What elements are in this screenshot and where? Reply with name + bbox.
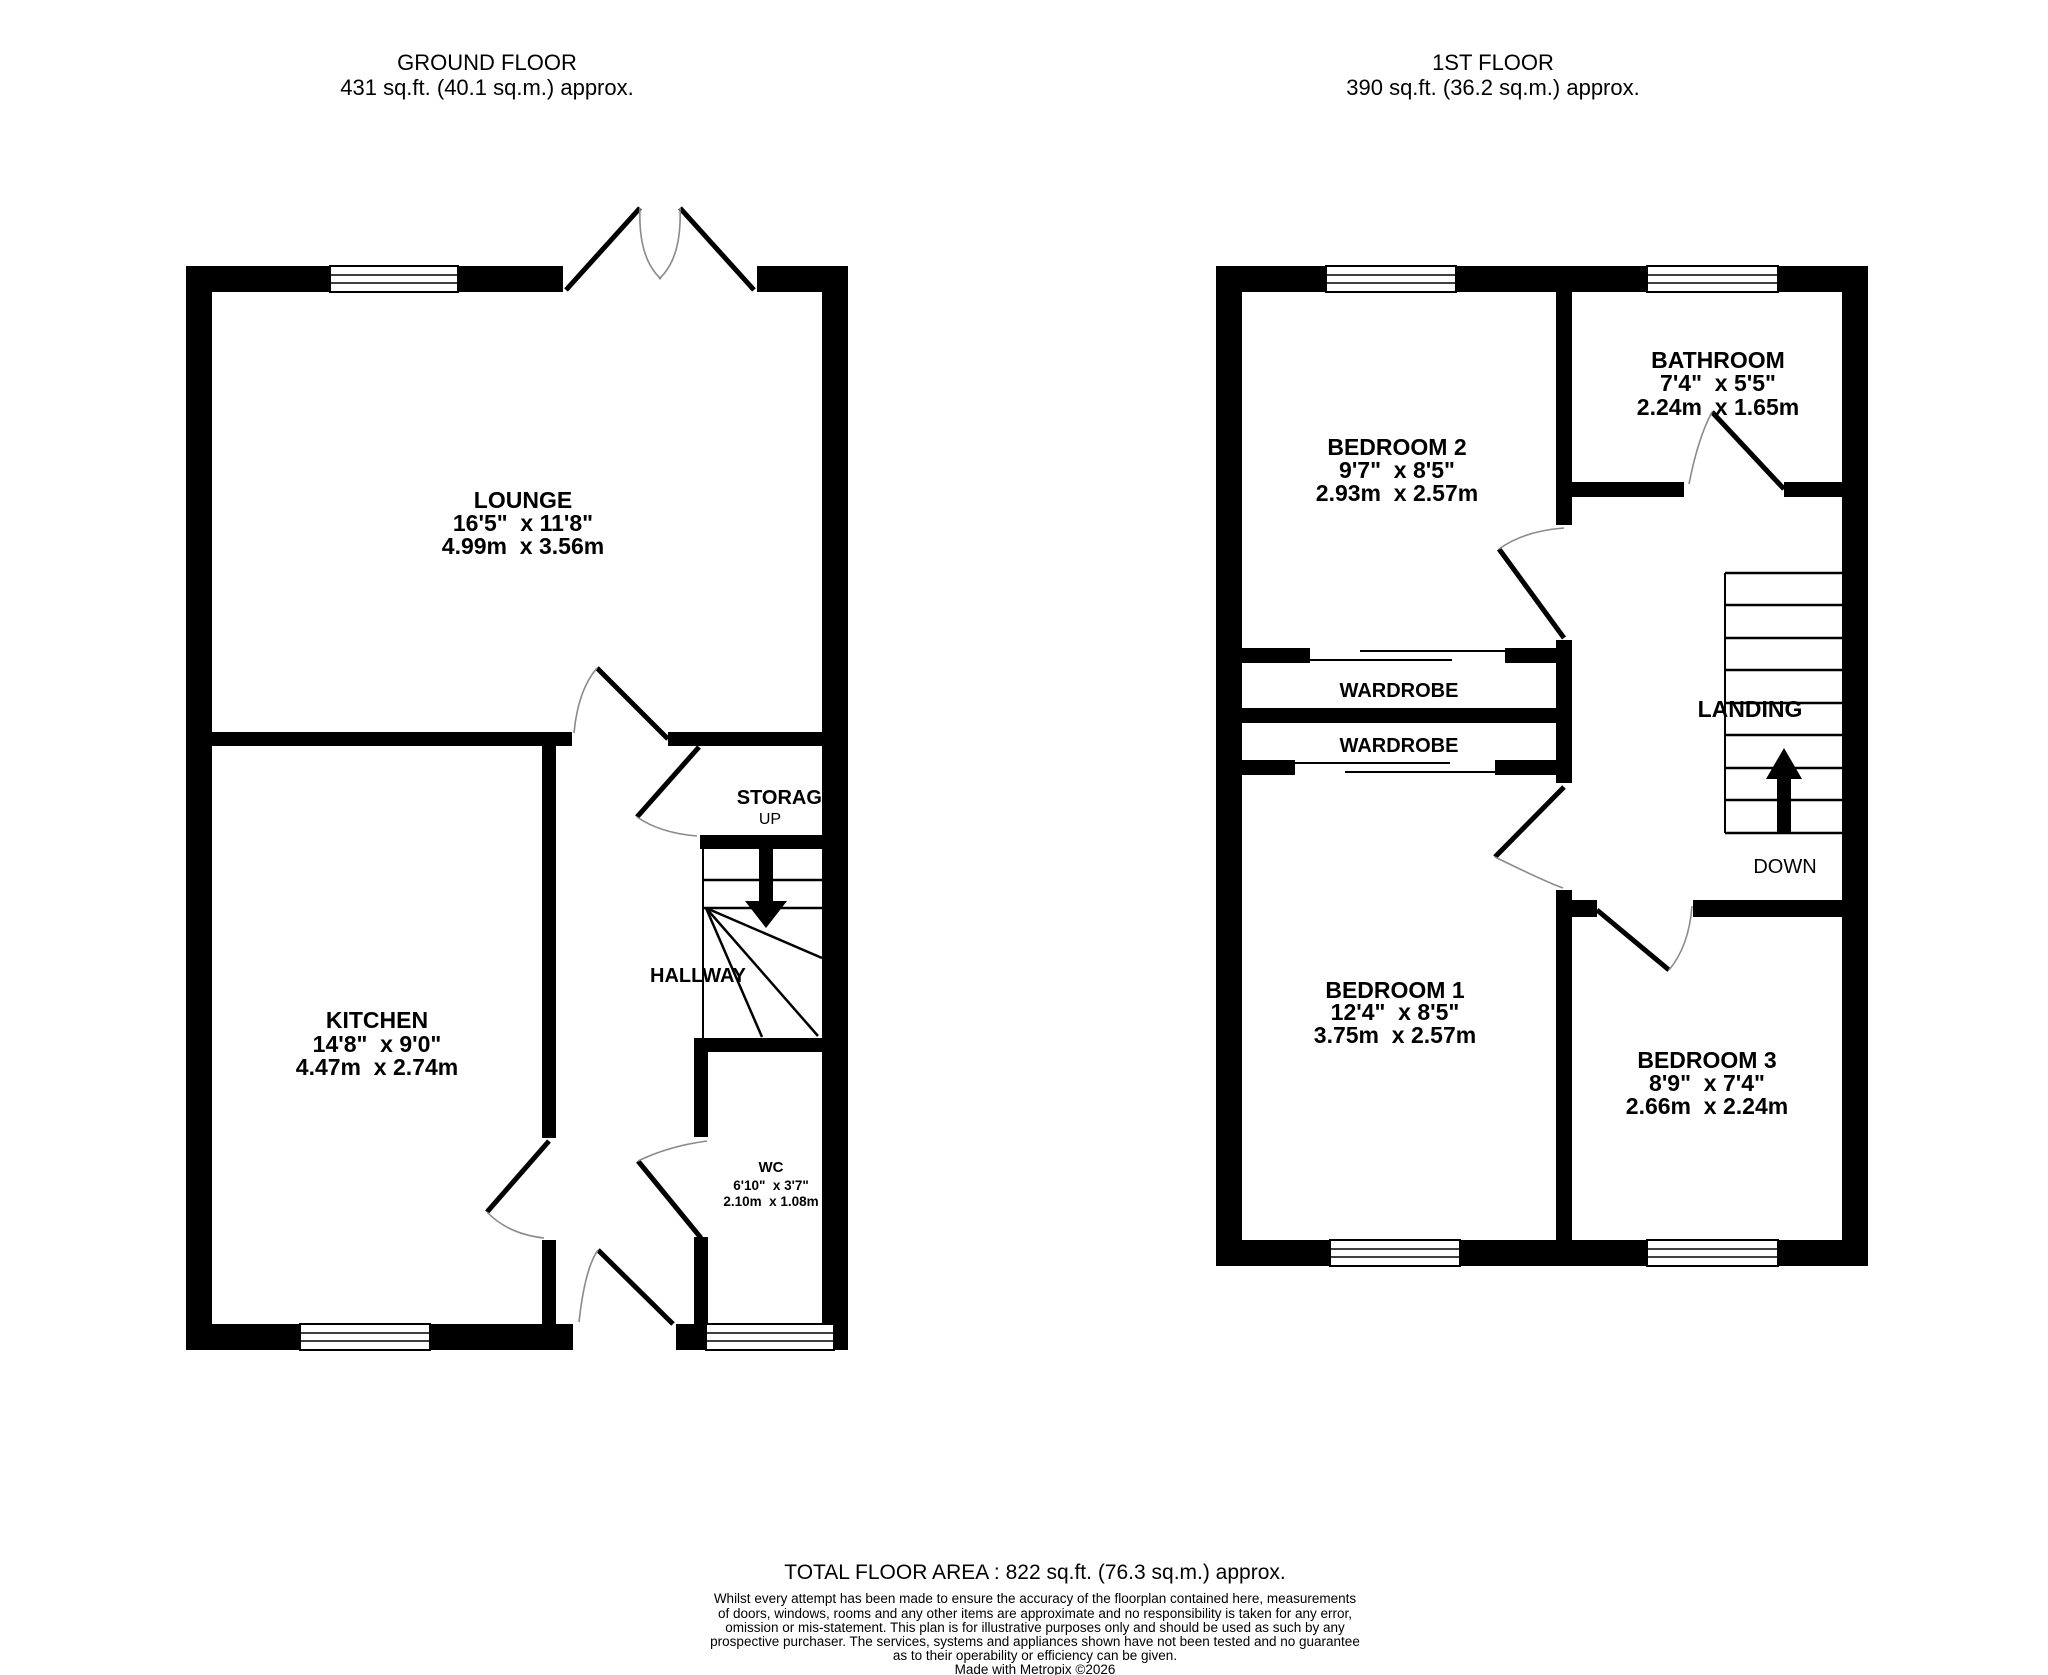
kitchen-metric: 4.47m x 2.74m <box>296 1054 458 1080</box>
wardrobe2-label: WARDROBE <box>1340 735 1459 757</box>
bathroom-imperial: 7'4" x 5'5" <box>1660 370 1776 396</box>
metropix-credit: Made with Metropix ©2026 <box>955 1662 1116 1675</box>
wc-imperial: 6'10" x 3'7" <box>733 1178 809 1193</box>
bedroom3-metric: 2.66m x 2.24m <box>1626 1093 1788 1119</box>
storage-label: STORAGE <box>737 787 836 809</box>
storage-door <box>637 747 699 836</box>
bathroom-window <box>1647 266 1778 292</box>
disclaimer-line-3: omission or mis-statement. This plan is … <box>725 1620 1345 1635</box>
first-floor-plan: 1ST FLOOR 390 sq.ft. (36.2 sq.m.) approx… <box>1216 50 1868 1266</box>
room-label-bathroom: BATHROOM 7'4" x 5'5" 2.24m x 1.65m <box>1637 347 1799 420</box>
disclaimer-line-4: prospective purchaser. The services, sys… <box>710 1634 1360 1649</box>
up-arrow-icon <box>745 849 787 928</box>
disclaimer-line-5: as to their operability or efficiency ca… <box>893 1648 1177 1663</box>
ground-floor-title: GROUND FLOOR <box>397 50 577 75</box>
disclaimer-line-1: Whilst every attempt has been made to en… <box>714 1591 1357 1606</box>
down-arrow-icon <box>1766 748 1802 833</box>
ground-floor-stairs <box>703 849 822 1038</box>
bathroom-metric: 2.24m x 1.65m <box>1637 394 1799 420</box>
room-label-bedroom1: BEDROOM 1 12'4" x 8'5" 3.75m x 2.57m <box>1314 977 1476 1048</box>
bedroom2-metric: 2.93m x 2.57m <box>1316 480 1478 506</box>
bedroom2-door <box>1499 528 1564 638</box>
wc-metric: 2.10m x 1.08m <box>723 1194 818 1209</box>
footer: TOTAL FLOOR AREA : 822 sq.ft. (76.3 sq.m… <box>710 1561 1360 1675</box>
down-label: DOWN <box>1753 856 1816 878</box>
room-label-bedroom3: BEDROOM 3 8'9" x 7'4" 2.66m x 2.24m <box>1626 1047 1788 1119</box>
room-label-kitchen: KITCHEN 14'8" x 9'0" 4.47m x 2.74m <box>296 1007 458 1080</box>
room-label-wc: WC 6'10" x 3'7" 2.10m x 1.08m <box>723 1159 818 1209</box>
first-floor-area: 390 sq.ft. (36.2 sq.m.) approx. <box>1346 75 1639 100</box>
bedroom1-window <box>1330 1240 1460 1266</box>
patio-double-door <box>566 208 754 290</box>
landing-label: LANDING <box>1698 696 1803 722</box>
wc-door <box>638 1141 707 1238</box>
floorplan-page: { "ground_floor": { "title": "GROUND FLO… <box>0 0 2048 1675</box>
bedroom2-window <box>1326 266 1456 292</box>
disclaimer-line-2: of doors, windows, rooms and any other i… <box>718 1606 1352 1621</box>
bedroom1-metric: 3.75m x 2.57m <box>1314 1022 1476 1048</box>
bathroom-door <box>1689 412 1784 489</box>
first-floor-title: 1ST FLOOR <box>1432 50 1554 75</box>
lounge-window <box>330 266 458 292</box>
ground-floor-area: 431 sq.ft. (40.1 sq.m.) approx. <box>340 75 633 100</box>
kitchen-door <box>487 1141 549 1238</box>
room-label-bedroom2: BEDROOM 2 9'7" x 8'5" 2.93m x 2.57m <box>1316 434 1478 506</box>
room-label-lounge: LOUNGE 16'5" x 11'8" 4.99m x 3.56m <box>442 487 604 559</box>
wc-name: WC <box>759 1159 784 1176</box>
kitchen-name: KITCHEN <box>326 1007 428 1033</box>
lounge-metric: 4.99m x 3.56m <box>442 533 604 559</box>
bedroom3-door <box>1597 906 1692 970</box>
bedroom1-door <box>1495 787 1564 888</box>
hallway-label: HALLWAY <box>650 965 747 987</box>
kitchen-window <box>300 1324 430 1350</box>
total-floor-area: TOTAL FLOOR AREA : 822 sq.ft. (76.3 sq.m… <box>784 1561 1285 1584</box>
floorplan-canvas: GROUND FLOOR 431 sq.ft. (40.1 sq.m.) app… <box>0 0 2048 1675</box>
wardrobe1-label: WARDROBE <box>1340 680 1459 702</box>
ground-floor-plan: GROUND FLOOR 431 sq.ft. (40.1 sq.m.) app… <box>186 50 848 1350</box>
bedroom3-window <box>1647 1240 1778 1266</box>
front-door <box>579 1250 673 1324</box>
up-label: UP <box>759 811 781 828</box>
lounge-door <box>574 668 668 739</box>
wc-window <box>706 1324 834 1350</box>
